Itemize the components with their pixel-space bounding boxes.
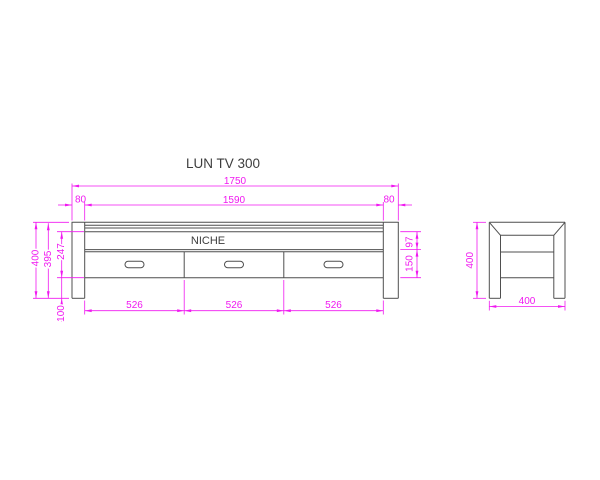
front-view [72, 222, 399, 298]
dim-arrow [35, 291, 38, 298]
dim-arrow [398, 204, 405, 207]
dim-arrow [489, 305, 496, 308]
dim-text-opening-height: 247 [56, 243, 67, 260]
drawing-title: LUN TV 300 [186, 156, 260, 171]
side-top-bevel-right [554, 222, 565, 235]
dim-arrow [416, 271, 419, 278]
dim-text-opening-width: 1590 [223, 195, 246, 206]
dim-arrow [277, 309, 284, 312]
dim-arrow [47, 291, 50, 298]
dim-text-right-side: 80 [383, 195, 395, 206]
dim-arrow [416, 243, 419, 250]
dim-arrow [284, 309, 291, 312]
dim-text-drawer-height: 150 [405, 255, 416, 272]
dim-arrow [476, 222, 479, 229]
dim-arrow [416, 250, 419, 257]
dim-text-body-height: 395 [43, 250, 54, 267]
dim-text-niche-height: 97 [405, 236, 416, 248]
dim-text-drawer-width-3: 526 [325, 300, 342, 311]
drawing-canvas: LUN TV 300 NICHE [0, 0, 600, 480]
side-view [489, 222, 565, 298]
dim-text-side-height: 400 [465, 252, 476, 269]
dim-arrow [177, 309, 184, 312]
dim-arrow [376, 309, 383, 312]
drawer-handle-2 [225, 261, 244, 267]
dim-text-total-width: 1750 [224, 176, 247, 187]
side-top-bevel-left [489, 222, 500, 235]
dim-arrow [60, 232, 63, 239]
dim-arrow [558, 305, 565, 308]
dim-arrow [184, 309, 191, 312]
dim-arrow [60, 298, 63, 305]
dimension-lines [33, 184, 565, 323]
drawer-handle-1 [125, 261, 144, 267]
dim-arrow [85, 309, 92, 312]
dim-text-left-side: 80 [75, 195, 87, 206]
dim-text-base-clearance: 100 [56, 305, 67, 322]
dim-text-total-height: 400 [31, 249, 42, 266]
dim-text-side-depth: 400 [519, 296, 536, 307]
dim-arrow [60, 271, 63, 278]
dim-arrow [47, 223, 50, 230]
technical-drawing: LUN TV 300 NICHE [0, 0, 600, 480]
dim-arrow [391, 185, 398, 188]
dim-arrow [476, 291, 479, 298]
dimension-arrows [35, 185, 565, 313]
dim-arrow [65, 204, 72, 207]
niche-label: NICHE [191, 235, 225, 247]
dim-arrow [416, 232, 419, 239]
dim-text-drawer-width-1: 526 [126, 300, 143, 311]
drawer-handle-3 [324, 261, 343, 267]
dim-arrow [35, 222, 38, 229]
dimension-texts: 1750 1590 80 80 400 395 247 100 97 150 5… [31, 176, 536, 322]
dim-text-drawer-width-2: 526 [226, 300, 243, 311]
dim-arrow [72, 185, 79, 188]
dim-arrow [376, 204, 383, 207]
